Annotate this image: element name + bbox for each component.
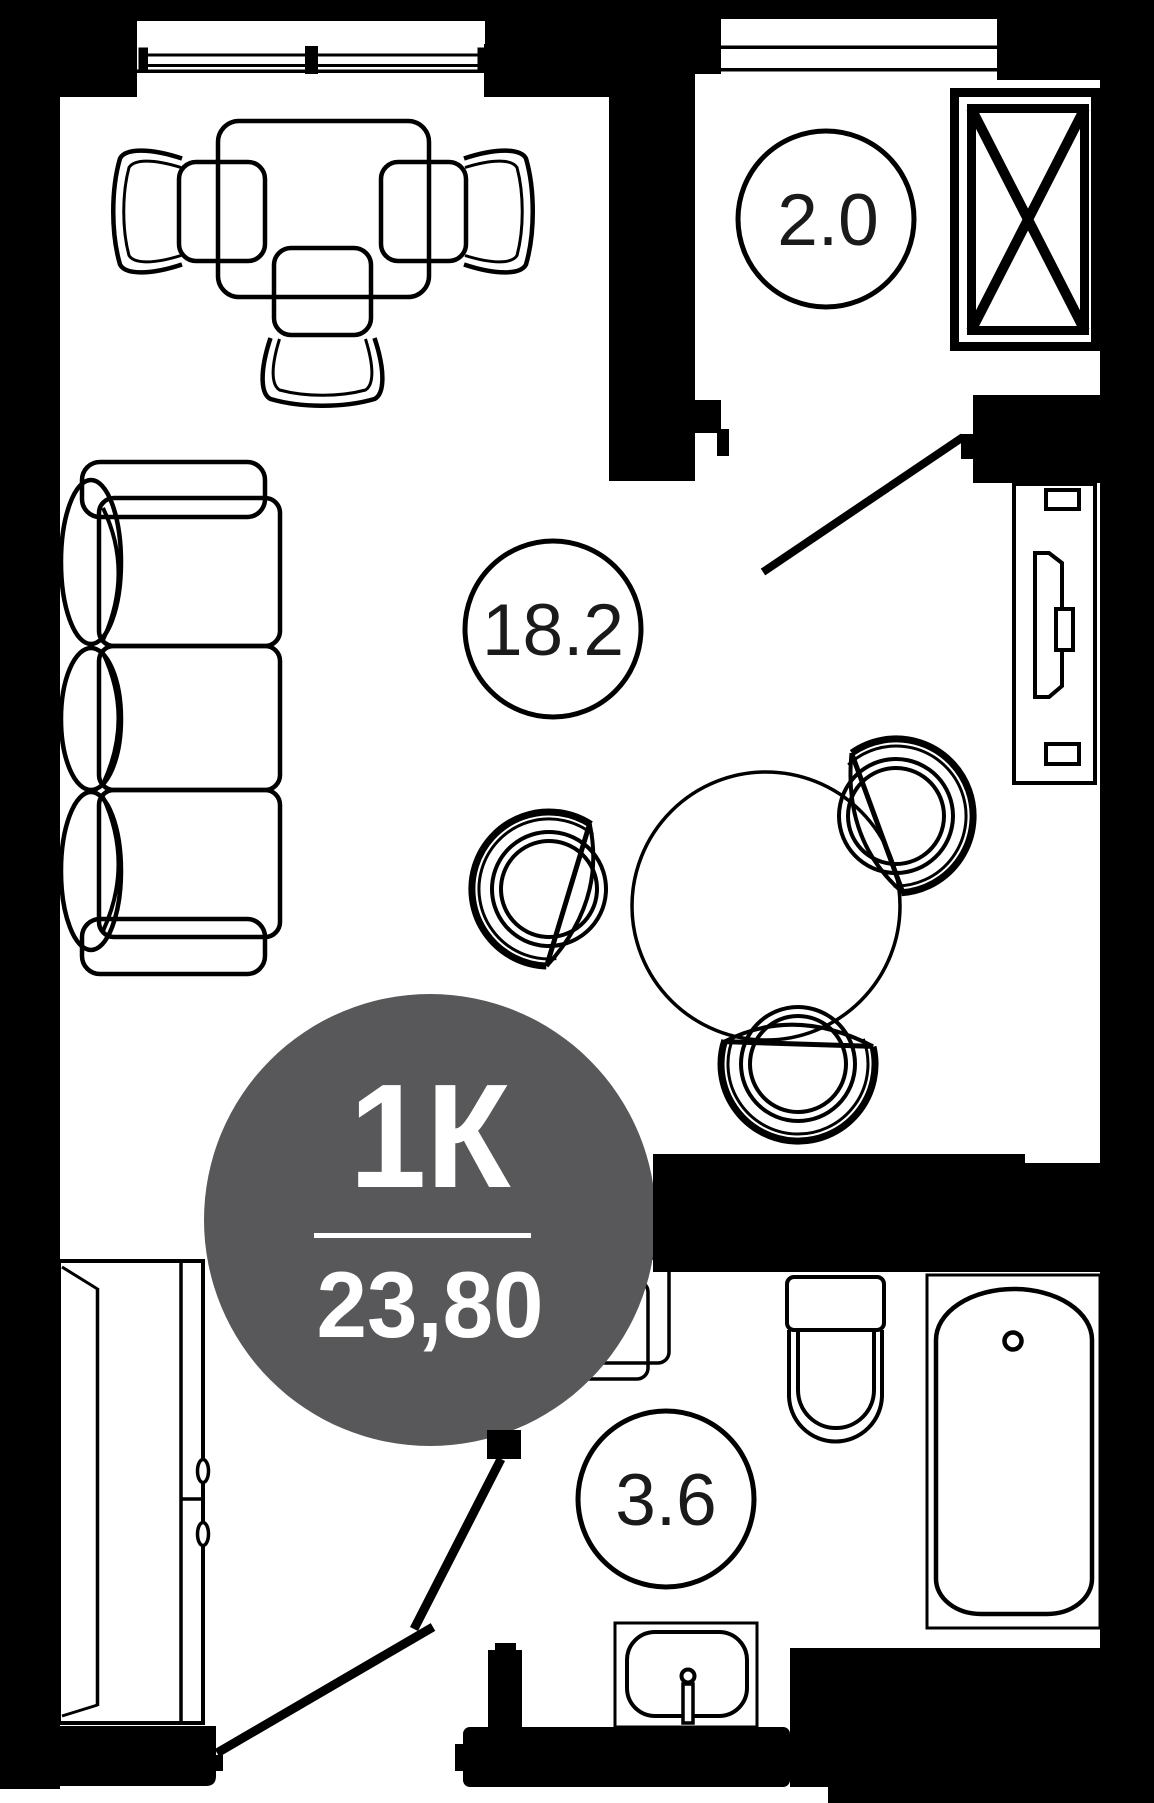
- svg-text:18.2: 18.2: [482, 590, 624, 671]
- svg-text:3.6: 3.6: [615, 1460, 716, 1541]
- svg-text:2.0: 2.0: [777, 180, 878, 261]
- svg-text:23,80: 23,80: [317, 1252, 544, 1357]
- svg-text:1К: 1К: [350, 1054, 512, 1219]
